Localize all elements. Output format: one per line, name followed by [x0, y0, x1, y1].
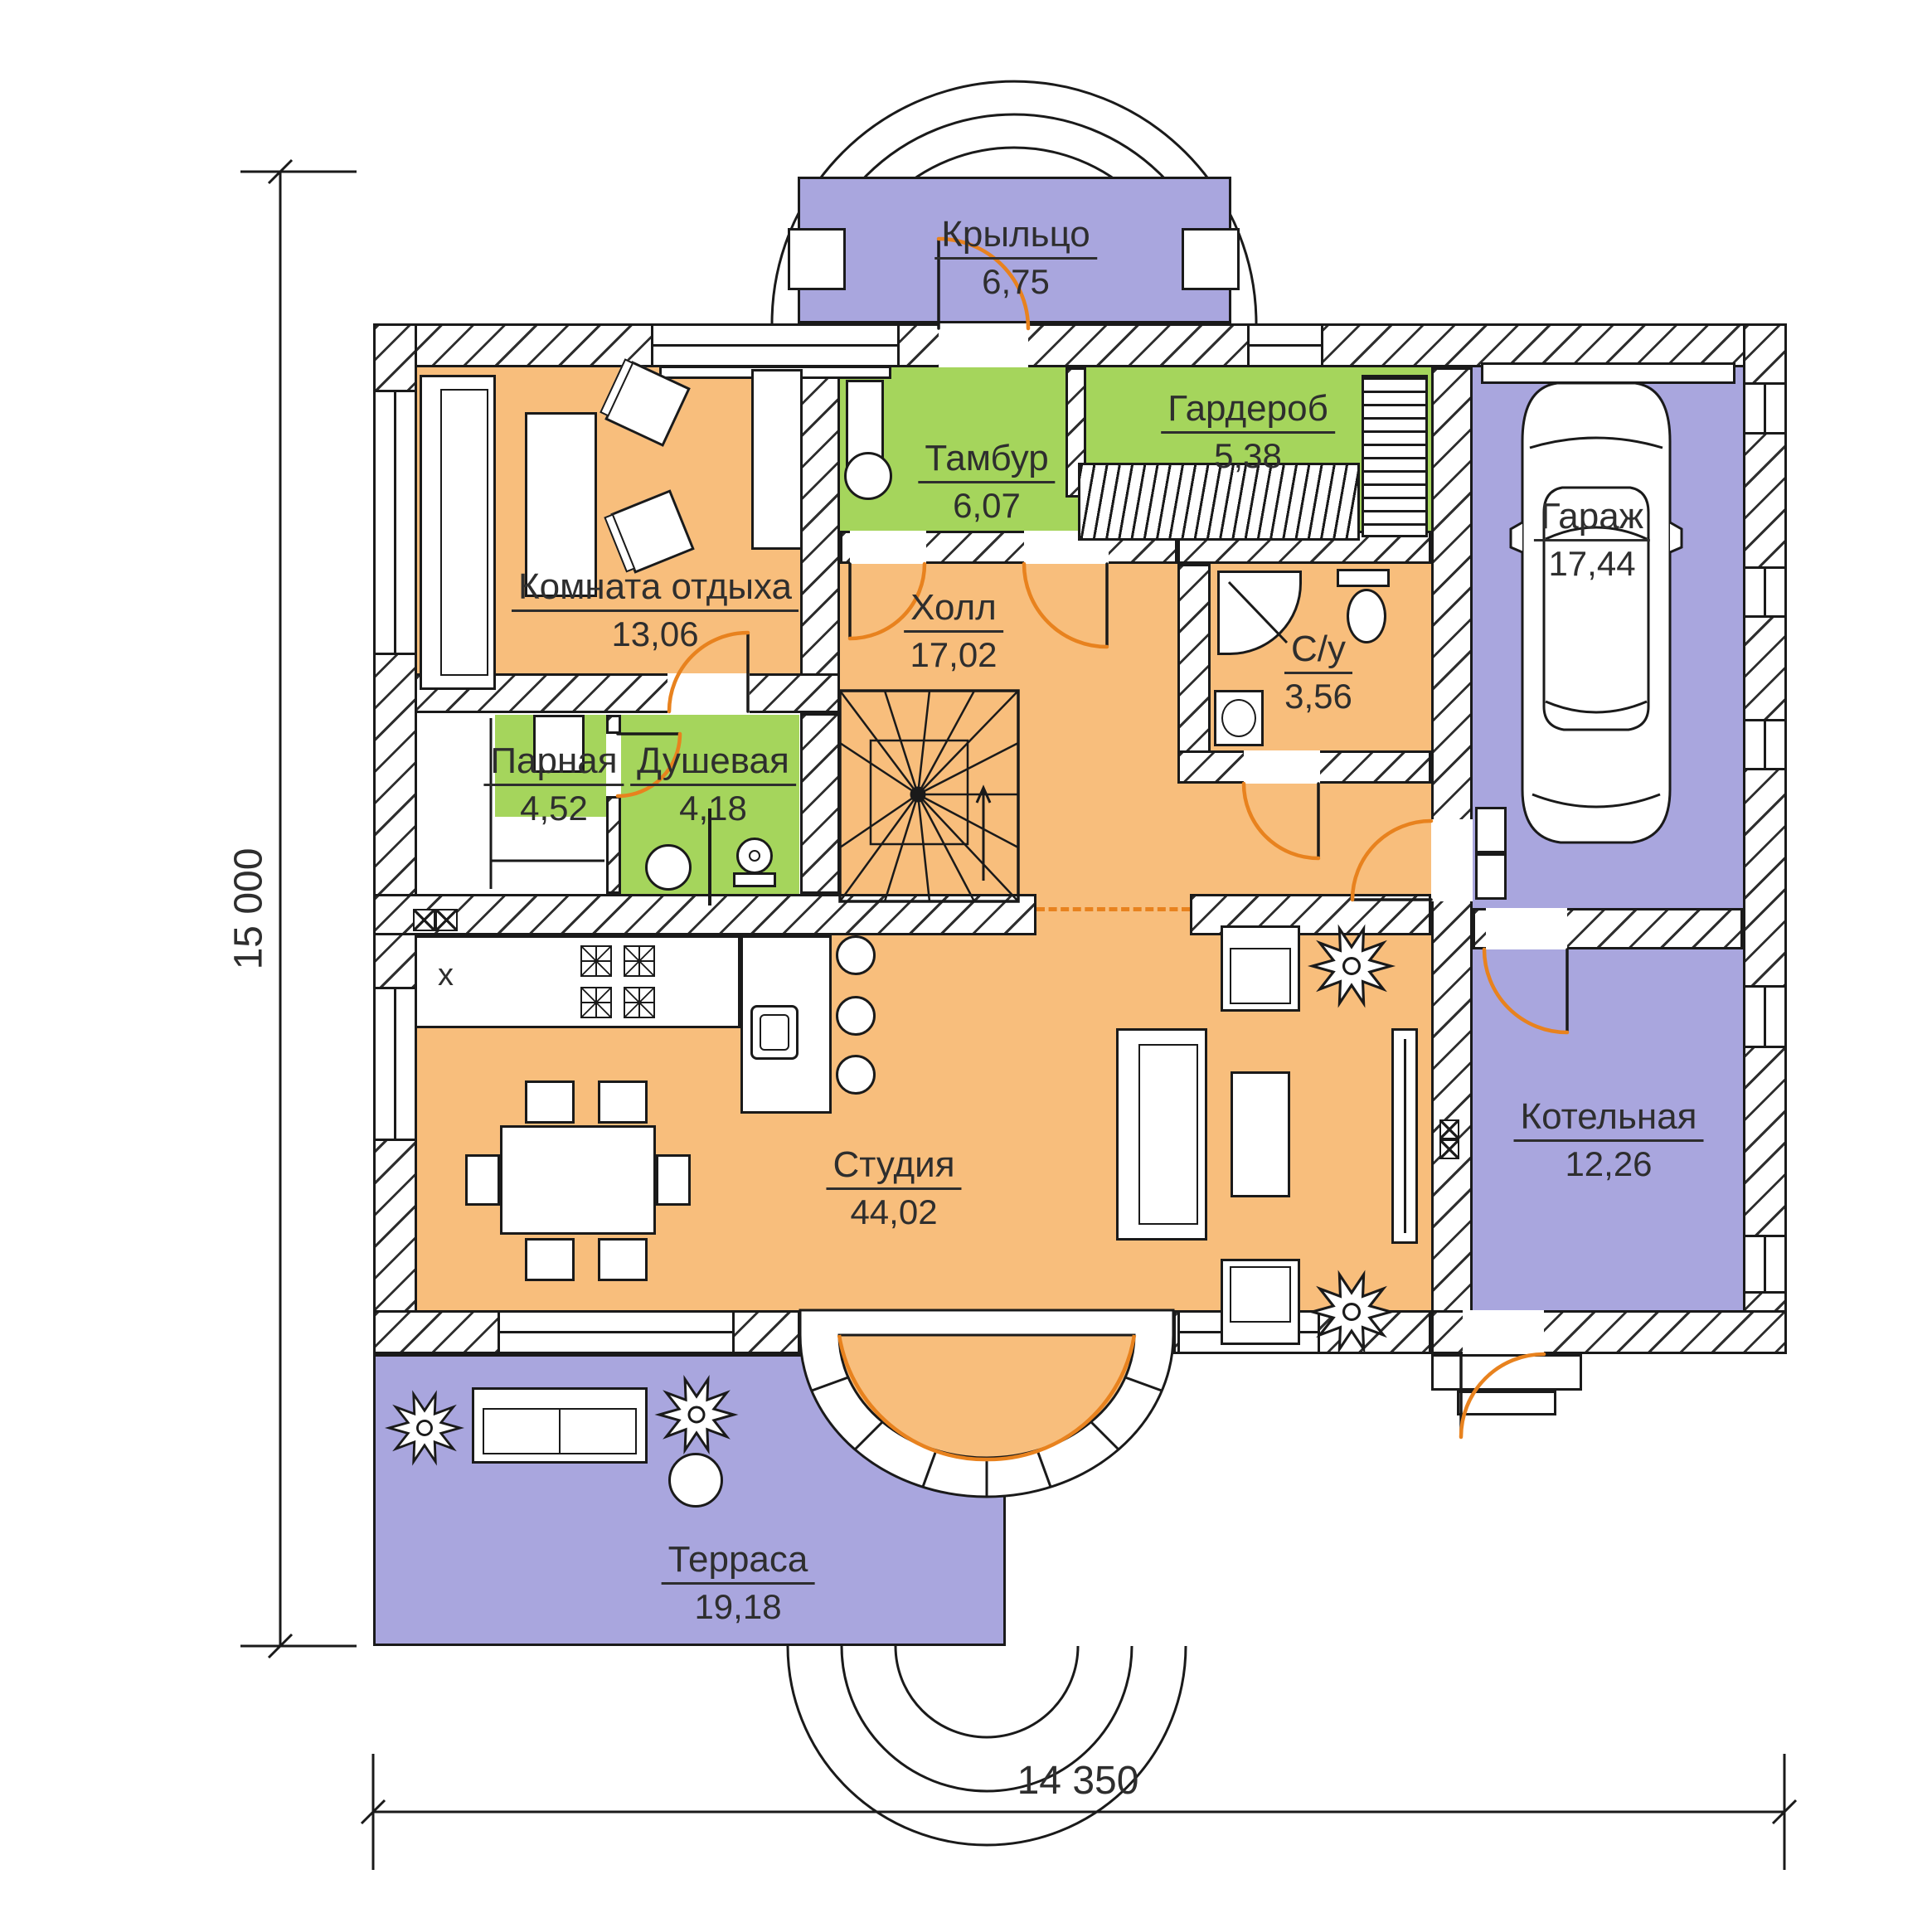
shower-diagonal-line: [1229, 582, 1287, 643]
room-label-steam: Парная 4,52: [483, 740, 624, 828]
floor-plan: x: [0, 0, 1932, 1918]
bay-window-icon: [800, 1310, 1173, 1497]
room-label-lounge: Комната отдыха 13,06: [512, 566, 799, 654]
room-label-studio: Студия 44,02: [826, 1144, 961, 1232]
room-label-shower: Душевая 4,18: [630, 740, 796, 828]
room-label-hall: Холл 17,02: [904, 587, 1003, 675]
room-label-wardrobe: Гардероб 5,38: [1161, 388, 1335, 476]
door-swings: [618, 239, 1567, 1437]
dimension-label-bottom: 14 350: [1017, 1758, 1139, 1804]
dimension-label-left: 15 000: [226, 848, 272, 970]
staircase-icon: [840, 691, 1018, 901]
room-label-porch: Крыльцо 6,75: [934, 214, 1097, 302]
room-label-vestibule: Тамбур 6,07: [918, 438, 1055, 526]
room-label-bathroom: С/у 3,56: [1284, 629, 1352, 716]
room-label-terrace: Терраса 19,18: [662, 1539, 815, 1627]
room-label-garage: Гараж 17,44: [1534, 496, 1650, 584]
car-icon: [1511, 383, 1682, 842]
room-label-boiler: Котельная 12,26: [1514, 1096, 1704, 1184]
